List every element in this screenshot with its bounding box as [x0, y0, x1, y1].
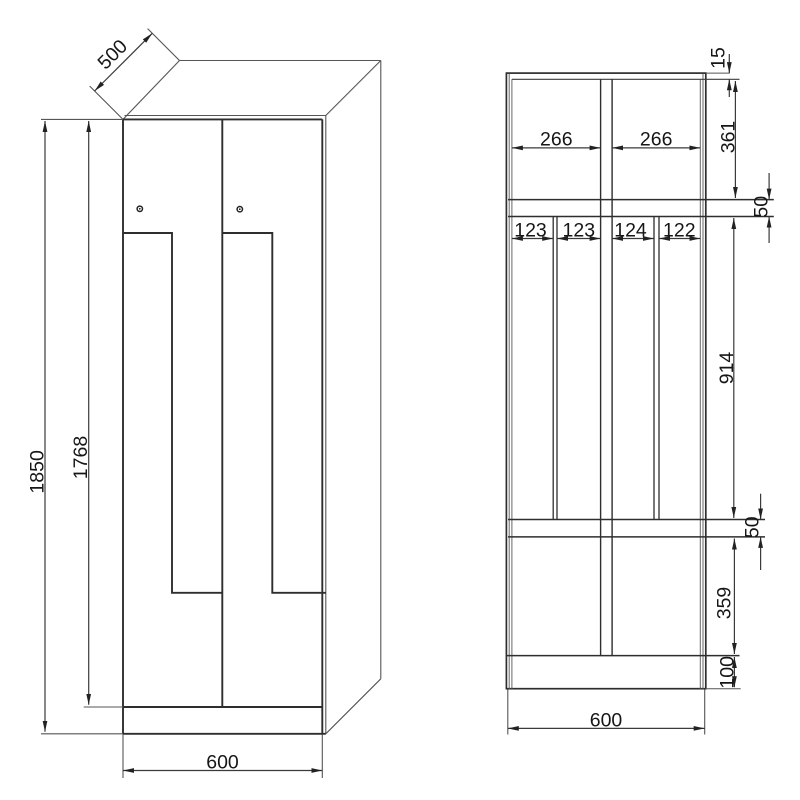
svg-text:100: 100 [717, 656, 739, 689]
svg-text:124: 124 [614, 219, 647, 241]
svg-text:600: 600 [206, 752, 239, 774]
svg-text:914: 914 [716, 352, 738, 385]
svg-text:50: 50 [742, 516, 764, 538]
svg-text:600: 600 [590, 710, 623, 732]
svg-text:123: 123 [514, 219, 547, 241]
svg-text:359: 359 [714, 587, 736, 620]
svg-text:1768: 1768 [70, 436, 92, 479]
svg-text:266: 266 [640, 129, 673, 151]
svg-text:122: 122 [663, 219, 696, 241]
svg-text:123: 123 [563, 219, 596, 241]
svg-text:15: 15 [708, 47, 730, 69]
svg-text:1850: 1850 [27, 450, 49, 494]
svg-text:361: 361 [718, 121, 740, 154]
svg-text:50: 50 [751, 196, 773, 218]
svg-text:266: 266 [540, 129, 573, 151]
